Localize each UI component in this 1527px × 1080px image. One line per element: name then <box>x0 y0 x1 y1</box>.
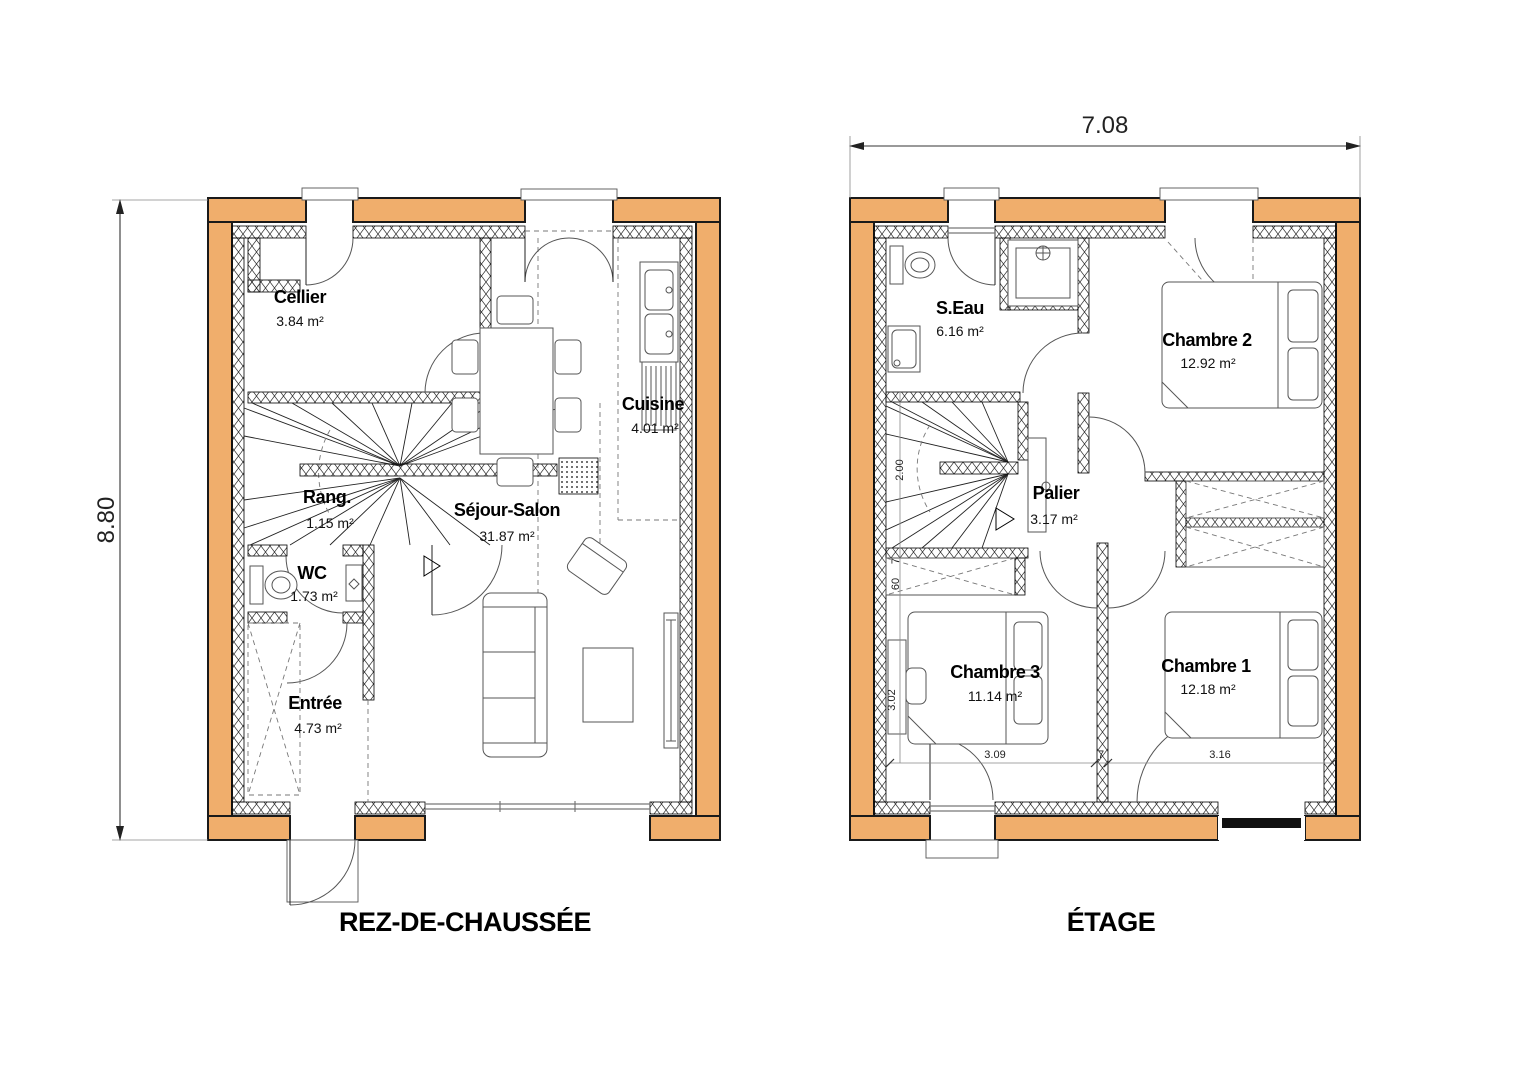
sofa-icon <box>483 593 547 757</box>
dim-left-height: 3.02 <box>886 689 898 710</box>
uf-understair-closet <box>886 558 1025 595</box>
shower-icon <box>1008 240 1078 306</box>
armchair-icon <box>565 535 629 596</box>
room-area-chambre3: 11.14 m² <box>968 688 1023 704</box>
tv-unit-icon <box>664 613 678 748</box>
room-label-cellier: Cellier <box>274 287 327 307</box>
room-label-seau: S.Eau <box>936 298 984 318</box>
room-area-wc: 1.73 m² <box>290 588 338 604</box>
overall-dimension-height: 8.80 <box>93 199 208 841</box>
room-area-chambre2: 12.92 m² <box>1180 355 1236 371</box>
dim-overall-height: 8.80 <box>93 497 120 544</box>
dim-bottom-right: 3.16 <box>1209 749 1230 761</box>
room-area-palier: 3.17 m² <box>1030 511 1078 527</box>
upper-floor-plan: 3.09 7 3.16 3.02 2.00 60 7 S.Eau 6.16 m²… <box>850 188 1360 858</box>
room-label-entree: Entrée <box>288 693 342 713</box>
floor-plan-drawing: Cellier 3.84 m² Cuisine 4.01 m² Séjour-S… <box>0 0 1527 1080</box>
uf-stair-direction-arrow <box>996 508 1014 530</box>
wc-sink-icon <box>346 565 362 601</box>
room-label-palier: Palier <box>1033 483 1080 503</box>
dim-closet-a: 60 <box>890 578 902 590</box>
dim-overall-width: 7.08 <box>1082 112 1129 139</box>
room-area-cellier: 3.84 m² <box>276 313 324 329</box>
gf-kitchen <box>618 238 680 520</box>
room-label-cuisine: Cuisine <box>622 394 685 414</box>
room-area-chambre1: 12.18 m² <box>1180 681 1236 697</box>
dim-bottom-left: 3.09 <box>984 749 1005 761</box>
dim-closet-b: 7 <box>890 558 902 564</box>
ground-floor-title: REZ-DE-CHAUSSÉE <box>339 906 591 937</box>
room-area-sejour: 31.87 m² <box>479 528 535 544</box>
room-label-chambre3: Chambre 3 <box>950 662 1040 682</box>
gf-living-furniture <box>483 535 678 757</box>
room-label-rangement: Rang. <box>303 487 351 507</box>
floor-plan-sheet: Cellier 3.84 m² Cuisine 4.01 m² Séjour-S… <box>0 0 1527 1080</box>
room-label-chambre1: Chambre 1 <box>1161 656 1251 676</box>
room-label-chambre2: Chambre 2 <box>1162 330 1252 350</box>
overall-dimension-width: 7.08 <box>849 112 1361 198</box>
gf-dining-set <box>452 296 581 486</box>
room-area-seau: 6.16 m² <box>936 323 984 339</box>
upper-floor-title: ÉTAGE <box>1067 906 1156 937</box>
room-area-rangement: 1.15 m² <box>306 515 354 531</box>
coffee-table-icon <box>583 648 633 722</box>
room-area-entree: 4.73 m² <box>294 720 342 736</box>
room-label-sejour: Séjour-Salon <box>454 500 560 520</box>
vanity-sink-icon <box>888 326 920 372</box>
room-label-wc: WC <box>297 563 327 583</box>
room-area-cuisine: 4.01 m² <box>631 420 679 436</box>
dim-stair-width: 2.00 <box>894 459 906 480</box>
ground-floor-plan: Cellier 3.84 m² Cuisine 4.01 m² Séjour-S… <box>208 188 720 905</box>
uf-dark-window <box>1222 818 1301 828</box>
dim-bottom-mid: 7 <box>1098 749 1104 761</box>
uf-toilet-icon <box>890 246 935 284</box>
